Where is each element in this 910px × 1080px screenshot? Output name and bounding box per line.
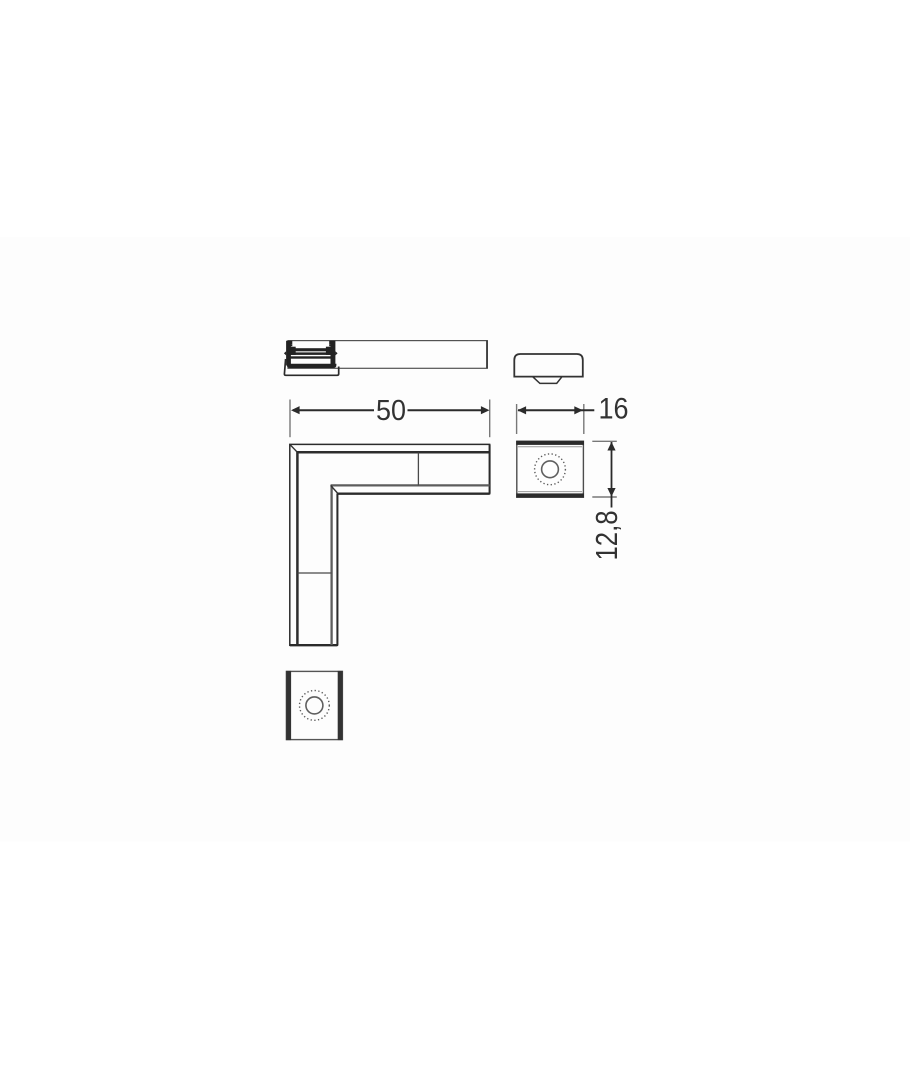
svg-text:50: 50 (376, 394, 406, 426)
svg-text:12,8: 12,8 (590, 510, 625, 560)
svg-text:16: 16 (598, 392, 628, 426)
